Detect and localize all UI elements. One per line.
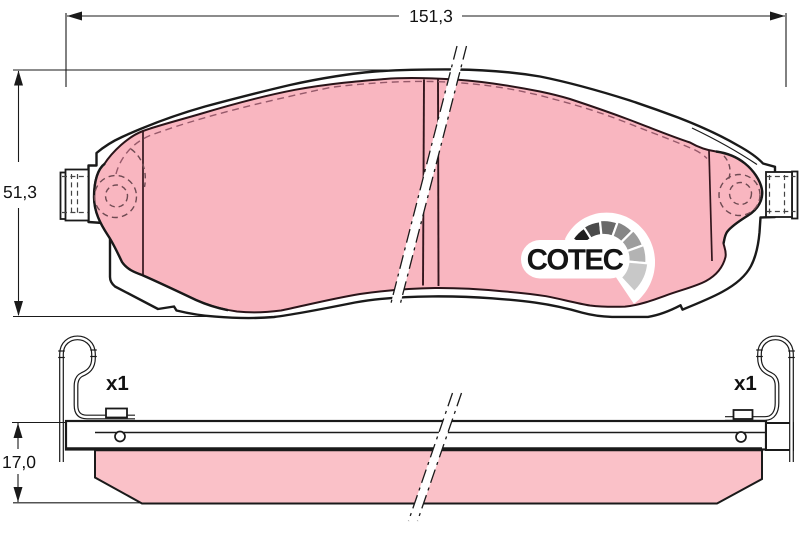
svg-text:COTEC: COTEC	[527, 244, 624, 277]
svg-text:151,3: 151,3	[409, 6, 453, 26]
svg-text:17,0: 17,0	[2, 452, 36, 472]
svg-text:x1: x1	[106, 372, 129, 395]
svg-text:x1: x1	[734, 372, 757, 395]
svg-text:51,3: 51,3	[3, 182, 37, 202]
